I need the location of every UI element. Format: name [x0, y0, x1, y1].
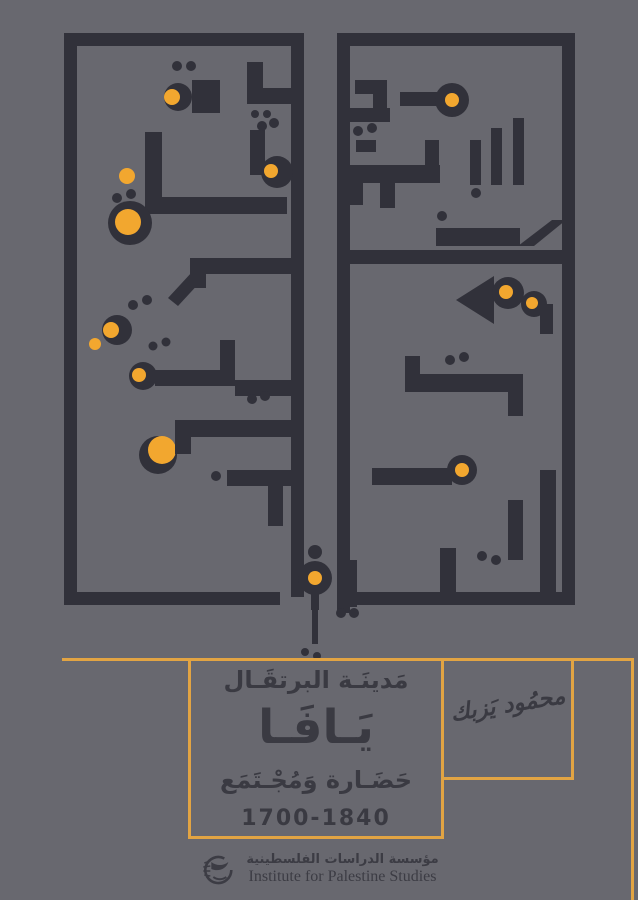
- publisher-name-english: Institute for Palestine Studies: [249, 868, 437, 886]
- title-line-city-of-oranges: مَدينَـة البرتقَـال: [188, 666, 444, 694]
- kufic-calligraphy-artwork: [0, 0, 638, 900]
- subtitle-society-civilization: حَضَـارة وَمُجْـتَمَع: [188, 766, 444, 794]
- title-years: 1700-1840: [188, 806, 444, 831]
- accent-rule: [188, 836, 444, 839]
- book-title-jaffa: يَـافَـا: [188, 700, 444, 755]
- book-cover: مَدينَـة البرتقَـال يَـافَـا حَضَـارة وَ…: [0, 0, 638, 900]
- accent-rule: [62, 658, 633, 661]
- publisher-name-arabic: مؤسسة الدراسات الفلسطينية: [246, 853, 438, 868]
- ips-logo-icon: [199, 851, 237, 889]
- publisher-block: مؤسسة الدراسات الفلسطينية Institute for …: [199, 851, 438, 889]
- accent-rule: [631, 658, 634, 900]
- publisher-name-lines: مؤسسة الدراسات الفلسطينية Institute for …: [246, 853, 438, 886]
- accent-rule: [441, 777, 574, 780]
- accent-rule: [571, 658, 574, 780]
